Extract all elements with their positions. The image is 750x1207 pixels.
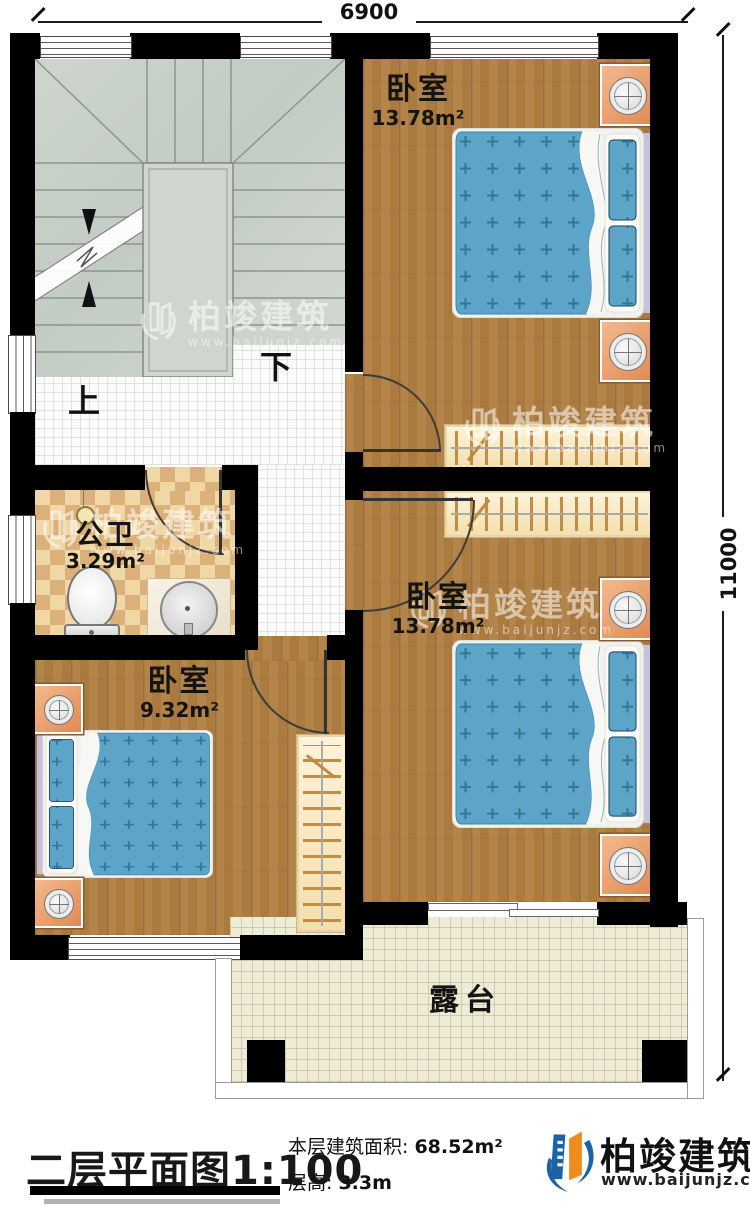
lamp	[609, 591, 647, 629]
window	[68, 937, 244, 960]
closet-rod	[451, 513, 648, 515]
legend-underline	[30, 1186, 280, 1195]
terrace-parapet	[215, 1082, 704, 1099]
closet-rod	[451, 447, 648, 449]
floor-plan: 柏竣建筑 www.baijunjz.com 柏竣建筑 www.baijunjz.…	[0, 0, 750, 1207]
room-area: 13.78m²	[368, 108, 468, 129]
company-website: www.baijunjz.com	[601, 1170, 750, 1189]
room-name: 公卫	[58, 520, 153, 549]
window	[240, 36, 332, 58]
sliding-door	[428, 903, 597, 917]
door-leaf	[324, 650, 327, 734]
lamp-cord	[83, 490, 84, 508]
room-area: 3.29m²	[58, 551, 153, 572]
wall-segment	[10, 412, 35, 515]
stair-down-label: 下	[260, 342, 292, 388]
floor-height-line: 层高: 3.3m	[288, 1168, 392, 1195]
room-area: 9.32m²	[132, 700, 227, 721]
floor-height-value: 3.3m	[338, 1172, 391, 1194]
room-area: 13.78m²	[388, 616, 488, 637]
floor-area-label: 本层建筑面积:	[288, 1136, 408, 1158]
double-bed	[37, 730, 213, 878]
wall-segment	[10, 33, 35, 335]
wall-segment	[130, 33, 240, 59]
wall-segment	[345, 452, 363, 500]
sliding-door-panel	[428, 903, 518, 911]
wall-segment	[10, 465, 145, 490]
nightstand	[600, 64, 654, 126]
wall-segment	[330, 33, 430, 59]
wall-segment	[235, 465, 258, 650]
wall-segment	[345, 59, 363, 372]
lamp	[609, 847, 647, 885]
terrace-pillar	[247, 1040, 285, 1082]
wall-segment	[10, 635, 245, 660]
nightstand	[600, 834, 654, 896]
room-name: 露台	[405, 985, 525, 1017]
lamp	[609, 77, 647, 115]
wall-segment	[597, 902, 687, 925]
terrace-parapet	[215, 958, 232, 1099]
legend-underline-shadow	[44, 1199, 280, 1204]
door-opening	[345, 374, 363, 452]
room-label-terrace: 露台	[405, 985, 525, 1017]
wall-segment	[10, 935, 70, 960]
room-name: 卧室	[132, 666, 227, 698]
toilet-bowl	[67, 566, 117, 630]
sink-counter	[147, 578, 231, 638]
floor-area-value: 68.52m²	[414, 1136, 502, 1158]
floor-height-label: 层高:	[288, 1172, 332, 1194]
wardrobe	[445, 491, 654, 537]
wall-segment	[327, 635, 363, 660]
sliding-door-panel	[509, 909, 599, 917]
company-logo-icon	[540, 1126, 594, 1194]
floor-area-line: 本层建筑面积: 68.52m²	[288, 1132, 503, 1159]
wardrobe	[445, 425, 654, 471]
wall-segment	[650, 33, 678, 927]
window	[8, 335, 36, 414]
wall-segment	[240, 935, 345, 960]
staircase	[35, 59, 345, 377]
toilet	[64, 566, 120, 646]
window	[8, 515, 36, 605]
lamp	[44, 889, 74, 919]
wall-segment	[363, 467, 650, 491]
nightstand	[33, 684, 83, 734]
nightstand	[600, 578, 654, 640]
door-leaf	[363, 498, 473, 501]
nightstand	[33, 878, 83, 928]
room-label-bedroom: 卧室 13.78m²	[388, 582, 488, 637]
lamp	[44, 695, 74, 725]
dimension-value-right: 11000	[717, 517, 741, 611]
double-bed	[452, 128, 650, 318]
stair-up-label: 上	[68, 376, 100, 422]
door-leaf	[363, 449, 441, 452]
double-bed	[452, 640, 650, 828]
door-leaf	[219, 470, 222, 555]
faucet	[184, 623, 193, 635]
wall-segment	[345, 902, 428, 925]
corridor-floor	[258, 465, 345, 650]
lamp	[609, 333, 647, 371]
wardrobe	[297, 735, 347, 932]
dimension-value-top: 6900	[322, 0, 416, 24]
window	[40, 36, 132, 58]
dimension-tick	[681, 7, 695, 21]
nightstand	[600, 320, 654, 382]
room-name: 卧室	[388, 582, 488, 614]
door-opening	[345, 500, 363, 610]
terrace-parapet	[687, 918, 704, 1099]
room-label-bedroom: 卧室 13.78m²	[368, 74, 468, 129]
window	[430, 36, 599, 58]
room-label-bathroom: 公卫 3.29m²	[58, 520, 153, 572]
room-label-bedroom: 卧室 9.32m²	[132, 666, 227, 721]
room-name: 卧室	[368, 74, 468, 106]
drain	[185, 606, 190, 611]
dimension-tick	[31, 7, 45, 21]
terrace-pillar	[642, 1040, 687, 1082]
